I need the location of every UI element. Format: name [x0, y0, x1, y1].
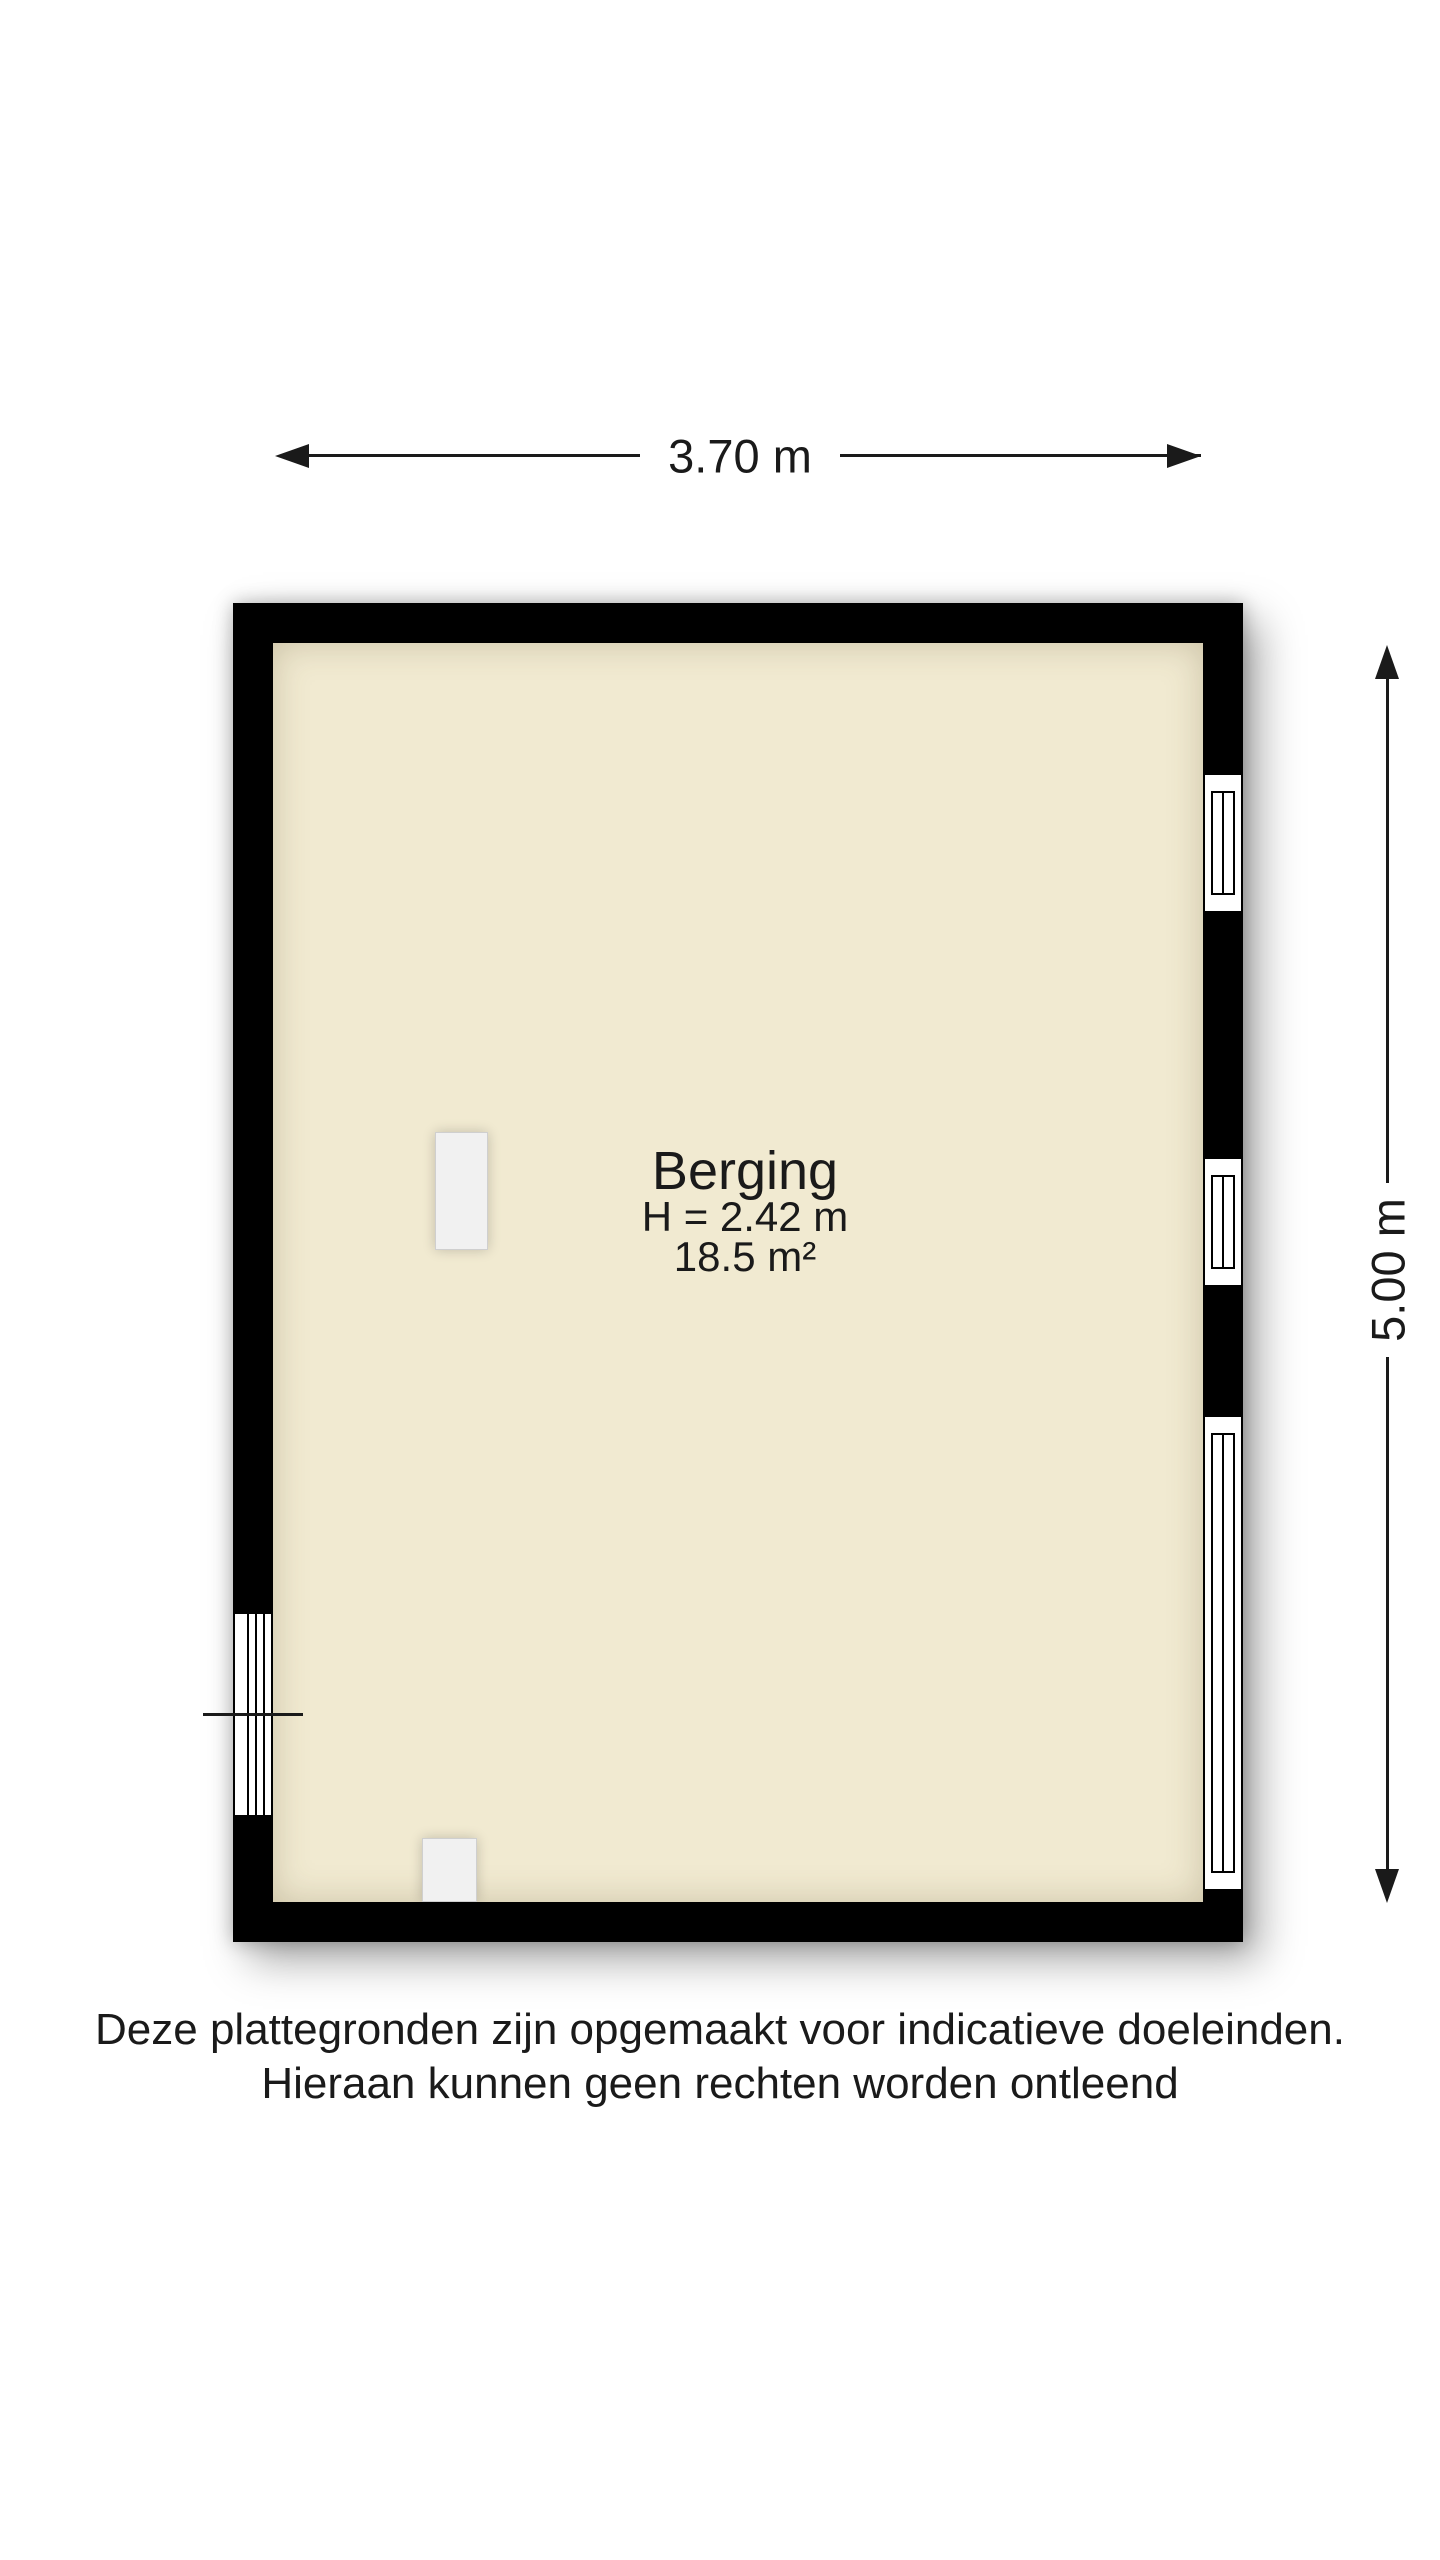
room-label: Berging H = 2.42 m 18.5 m²: [642, 1145, 849, 1277]
window-glass: [1211, 1433, 1235, 1873]
width-dimension-label: 3.70 m: [668, 429, 812, 484]
room-name: Berging: [642, 1145, 849, 1197]
building-outline: Berging H = 2.42 m 18.5 m²: [233, 603, 1243, 1942]
floorplan-canvas: 3.70 m Berging H = 2.42 m 18.5 m²: [0, 0, 1440, 2560]
disclaimer: Deze plattegronden zijn opgemaakt voor i…: [95, 2003, 1345, 2111]
height-dimension-line-bottom: [1386, 1357, 1389, 1872]
wall-fixture: [422, 1838, 477, 1902]
arrow-right-icon: [1167, 444, 1201, 468]
disclaimer-line-1: Deze plattegronden zijn opgemaakt voor i…: [95, 2003, 1345, 2057]
window-bottom-right: [1203, 1415, 1243, 1891]
window-middle-right: [1203, 1157, 1243, 1287]
room-height-label: H = 2.42 m: [642, 1197, 849, 1237]
interior-fixture: [435, 1132, 488, 1250]
window-top-right: [1203, 773, 1243, 913]
disclaimer-line-2: Hieraan kunnen geen rechten worden ontle…: [95, 2057, 1345, 2111]
height-dimension-line-top: [1386, 675, 1389, 1183]
arrow-up-icon: [1375, 645, 1399, 679]
width-dimension-line-left: [300, 454, 640, 457]
window-glass: [1211, 791, 1235, 895]
window-center-line: [203, 1713, 303, 1716]
room-area-label: 18.5 m²: [642, 1237, 849, 1277]
arrow-down-icon: [1375, 1869, 1399, 1903]
window-glass: [1211, 1175, 1235, 1269]
height-dimension-label: 5.00 m: [1361, 1198, 1416, 1342]
width-dimension-line-right: [840, 454, 1201, 457]
